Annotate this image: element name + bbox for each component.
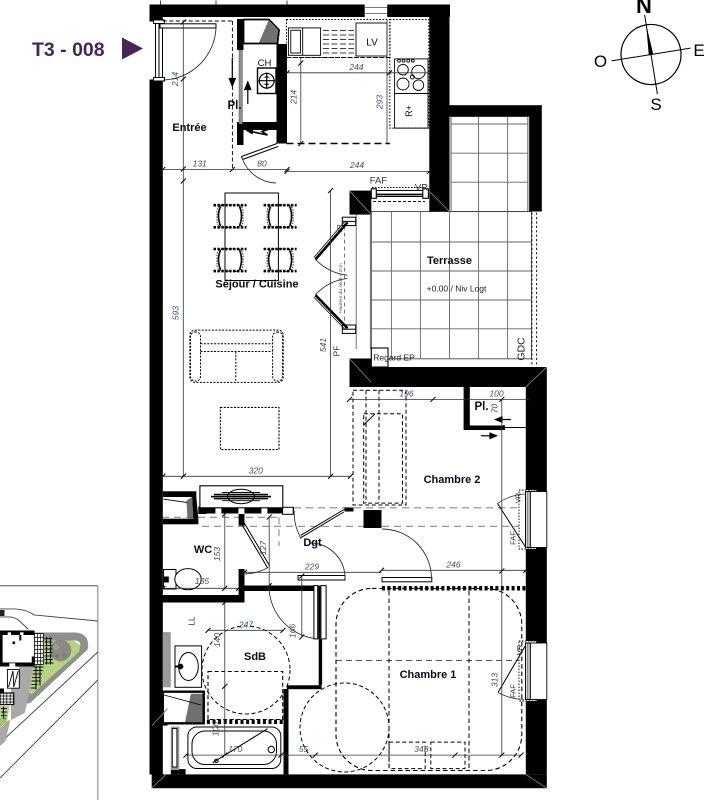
svg-text:106: 106	[211, 722, 221, 736]
svg-text:Regard EP: Regard EP	[373, 353, 415, 363]
svg-text:246: 246	[445, 559, 460, 569]
svg-text:LL: LL	[188, 616, 197, 625]
svg-text:Pl.: Pl.	[227, 100, 241, 112]
svg-text:100: 100	[489, 389, 503, 399]
svg-text:PF: PF	[332, 346, 342, 357]
svg-text:214: 214	[289, 90, 299, 105]
svg-text:Chambre 2: Chambre 2	[424, 474, 481, 486]
svg-text:VR: VR	[415, 183, 428, 194]
svg-text:313: 313	[489, 673, 499, 687]
svg-text:131: 131	[193, 159, 207, 169]
svg-text:593: 593	[171, 306, 181, 320]
svg-text:80: 80	[257, 159, 267, 169]
svg-text:O: O	[594, 52, 607, 71]
svg-text:E: E	[693, 41, 704, 60]
svg-text:214: 214	[170, 72, 180, 87]
svg-text:Chambre 1: Chambre 1	[400, 669, 457, 681]
svg-text:N: N	[636, 0, 652, 18]
svg-text:244: 244	[348, 62, 363, 72]
svg-text:LV: LV	[366, 38, 378, 49]
svg-text:WC: WC	[194, 544, 212, 556]
svg-text:Séjour / Cuisine: Séjour / Cuisine	[215, 279, 298, 291]
svg-text:153: 153	[212, 547, 222, 561]
svg-text:229: 229	[304, 561, 319, 571]
svg-text:T3 - 008: T3 - 008	[32, 39, 105, 61]
svg-text:S: S	[650, 95, 661, 114]
svg-text:55: 55	[299, 744, 309, 754]
svg-text:VR: VR	[337, 224, 344, 234]
svg-text:320: 320	[249, 465, 263, 475]
svg-text:170: 170	[228, 744, 242, 754]
svg-text:FAF: FAF	[509, 531, 518, 545]
svg-text:166: 166	[288, 624, 298, 638]
svg-text:SdB: SdB	[244, 651, 266, 663]
svg-text:Entrée: Entrée	[172, 122, 206, 134]
svg-text:VR: VR	[515, 644, 524, 655]
svg-text:127: 127	[258, 541, 268, 555]
svg-text:Terrasse: Terrasse	[427, 255, 472, 267]
svg-text:+0.00 / Niv Logt: +0.00 / Niv Logt	[427, 284, 487, 294]
svg-text:Pl.: Pl.	[474, 401, 488, 413]
svg-text:GDC: GDC	[516, 337, 528, 361]
svg-text:196: 196	[399, 389, 413, 399]
svg-text:FAF: FAF	[509, 684, 518, 698]
svg-text:348: 348	[414, 744, 428, 754]
svg-text:247: 247	[238, 619, 253, 629]
svg-text:541: 541	[318, 338, 328, 352]
svg-text:R+: R+	[404, 105, 414, 117]
svg-text:135: 135	[195, 576, 209, 586]
svg-text:VR: VR	[514, 492, 523, 503]
svg-text:Hauteur du seuil < 2cm: Hauteur du seuil < 2cm	[338, 263, 344, 312]
svg-text:244: 244	[349, 160, 364, 170]
svg-text:CH: CH	[258, 58, 272, 69]
svg-text:FAF: FAF	[370, 176, 388, 187]
svg-text:70: 70	[490, 404, 500, 414]
svg-text:293: 293	[375, 95, 385, 110]
svg-text:Dgt: Dgt	[303, 537, 322, 549]
svg-text:140: 140	[212, 633, 222, 647]
